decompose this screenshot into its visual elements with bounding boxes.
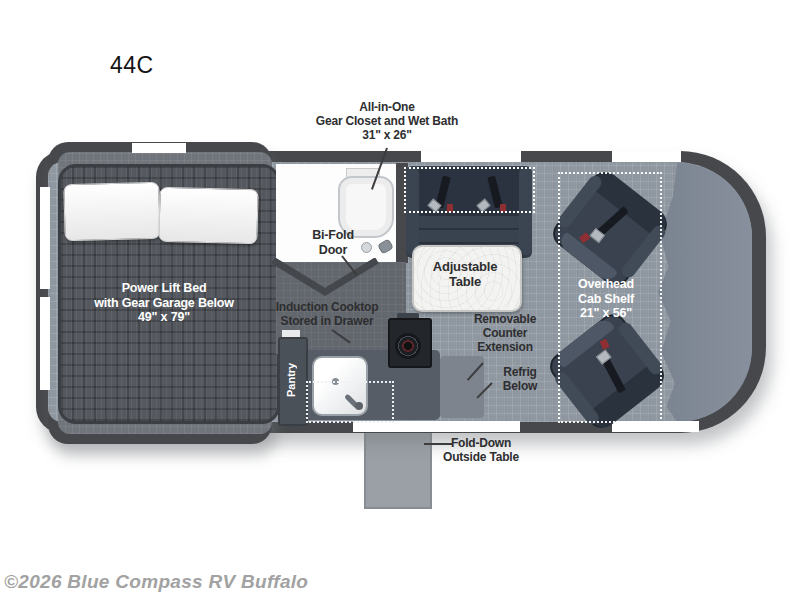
induction-cooktop-label: Induction Cooktop Stored in Drawer bbox=[257, 301, 397, 329]
rear-door-window-lower bbox=[40, 297, 50, 390]
watermark: ©2026 Blue Compass RV Buffalo bbox=[4, 571, 308, 593]
bifold-door-label: Bi-Fold Door bbox=[303, 228, 363, 257]
bed-label: Power Lift Bed with Gear Garage Below 49… bbox=[75, 281, 253, 325]
floorplan-diagram: 44C ©2026 Blue Compass RV Buffalo Power … bbox=[0, 0, 800, 600]
pillow-right bbox=[158, 187, 258, 245]
induction-burner-icon bbox=[395, 333, 421, 359]
window-top-sofa bbox=[421, 151, 521, 162]
window-top-cab bbox=[612, 151, 681, 162]
refrigerator-label: Refrig Below bbox=[480, 366, 560, 394]
pantry-label: Pantry bbox=[279, 345, 303, 415]
bench-seat-dotted-outline bbox=[404, 167, 535, 213]
overhead-cab-shelf-label: Overhead Cab Shelf 21" x 56" bbox=[556, 277, 656, 321]
gear-closet-label: All-in-One Gear Closet and Wet Bath 31" … bbox=[297, 101, 477, 143]
fold-down-outside-table bbox=[364, 424, 432, 509]
window-rear-top bbox=[132, 143, 186, 153]
counter-dotted-outline bbox=[306, 381, 394, 423]
bifold-door-swing bbox=[272, 258, 380, 298]
pantry-cabinet-top bbox=[282, 330, 300, 337]
rear-door-window-upper bbox=[40, 187, 50, 289]
pillow-left bbox=[63, 182, 160, 241]
outside-table-label: Fold-Down Outside Table bbox=[431, 437, 531, 465]
adjustable-table-label: Adjustable Table bbox=[417, 259, 513, 289]
floorplan-code: 44C bbox=[110, 52, 154, 79]
counter-extension-label: Removable Counter Extension bbox=[455, 313, 555, 355]
removable-counter-extension bbox=[440, 356, 484, 418]
